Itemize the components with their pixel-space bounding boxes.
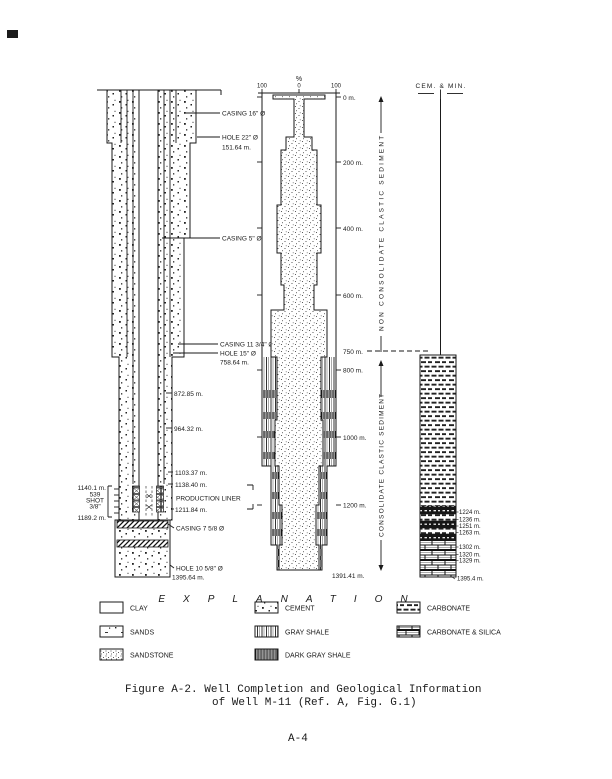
left-annulus-band [107, 90, 139, 520]
cem-depth-1236: 1236 m. [459, 518, 481, 524]
depth-964-label: 964.32 m. [174, 426, 203, 433]
depth-758-label: 758.64 m. [220, 360, 249, 367]
depth-1200m: 1200 m. [343, 503, 367, 510]
depth-151-label: 151.64 m. [222, 145, 251, 152]
depth-1103-label: 1103.37 m. [175, 470, 207, 477]
zone-upper-label: NON CONSOLIDATE CLASTIC SEDIMENT [379, 134, 386, 331]
legend-label-dark-gray-shale: DARK GRAY SHALE [285, 653, 351, 660]
hole-1058-label: HOLE 10 5/8" Ø [176, 566, 223, 573]
mineral-band-1263 [420, 534, 456, 540]
legend-label-clay: CLAY [130, 606, 148, 613]
depth-750m: 750 m. [343, 349, 363, 356]
legend-label-gray-shale: GRAY SHALE [285, 630, 329, 637]
depth-1211-label: 1211.84 m. [175, 507, 207, 514]
zone-annotations: NON CONSOLIDATE CLASTIC SEDIMENT CONSOLI… [379, 96, 386, 571]
legend-swatch-dark-gray-shale [255, 649, 278, 660]
depth-872-label: 872.85 m. [174, 391, 203, 398]
legend-title: EXPLANATION [158, 594, 425, 605]
shot-bracket [108, 486, 112, 517]
cem-depth-1263: 1263 m. [459, 531, 481, 537]
scan-artifact [7, 30, 18, 38]
legend-label-sandstone: SANDSTONE [130, 653, 174, 660]
casing-16-label: CASING 16" Ø [222, 111, 265, 118]
cem-depth-1302: 1302 m. [459, 545, 481, 551]
shot-perforation-ticks [114, 489, 119, 513]
mineral-band-1224 [420, 506, 456, 514]
bottom-hole-section [115, 520, 170, 577]
depth-1391m: 1391.41 m. [332, 573, 365, 580]
cem-min-column: CEM. & MIN. 1224 m. 1236 m. 1251 m. 1263… [415, 83, 484, 583]
depth-800m: 800 m. [343, 368, 363, 375]
caption-line2: of Well M-11 (Ref. A, Fig. G.1) [212, 697, 417, 709]
depth-0m: 0 m. [343, 95, 356, 102]
legend-label-carbonate-silica: CARBONATE & SILICA [427, 630, 501, 637]
scale-100-right: 100 [331, 84, 342, 90]
depth-1138-label: 1138.40 m. [175, 482, 207, 489]
scale-ticks [262, 89, 336, 93]
cement-column: % 100 0 100 [257, 76, 428, 580]
legend-swatch-carbonate-silica [397, 626, 420, 637]
well-schematic: CASING 16" Ø HOLE 22" Ø 151.64 m. CASING… [78, 90, 274, 582]
scale-title: % [296, 76, 302, 83]
figure-caption: Figure A-2. Well Completion and Geologic… [125, 684, 481, 709]
depth-200m: 200 m. [343, 160, 363, 167]
casing-11-label: CASING 11 3/4" Ø [220, 342, 274, 349]
hole-15-label: HOLE 15" Ø [220, 351, 256, 358]
production-liner-right [157, 486, 164, 512]
scanned-page: CASING 16" Ø HOLE 22" Ø 151.64 m. CASING… [0, 0, 612, 779]
figure-a2-diagram: CASING 16" Ø HOLE 22" Ø 151.64 m. CASING… [0, 0, 612, 779]
arrow-down-icon [379, 565, 384, 571]
legend-swatch-clay [100, 602, 123, 613]
cem-depth-1329: 1329 m. [459, 559, 481, 565]
legend-label-sands: SANDS [130, 630, 154, 637]
legend: EXPLANATION CLAY SANDS SANDSTONE CEMENT … [100, 594, 501, 660]
legend-label-carbonate: CARBONATE [427, 606, 470, 613]
depth-1189-label: 1189.2 m. [78, 515, 107, 522]
casing-5-label: CASING 5" Ø [222, 236, 262, 243]
page-number: A-4 [288, 733, 308, 745]
cem-min-header-ticks [418, 90, 463, 100]
legend-swatch-carbonate [397, 602, 420, 613]
depth-1395-label: 1395.64 m. [172, 575, 205, 582]
depth-1000m: 1000 m. [343, 435, 367, 442]
arrow-up-icon [379, 96, 384, 102]
scale-100-left: 100 [257, 84, 268, 90]
mineral-band-1251 [420, 521, 456, 528]
cem-min-header: CEM. & MIN. [415, 83, 466, 90]
cement-plug-upper [117, 521, 168, 528]
cement-profile [271, 95, 327, 570]
casing-758-label: CASING 7 5/8 Ø [176, 526, 224, 533]
carbonate-silica-section [420, 540, 456, 577]
arrow-up-icon [379, 360, 384, 366]
legend-swatch-sands [100, 626, 123, 637]
legend-label-cement: CEMENT [285, 606, 315, 613]
depth-600m: 600 m. [343, 293, 363, 300]
legend-swatch-sandstone [100, 649, 123, 660]
cement-plug-lower [117, 540, 168, 547]
cem-depth-1395: 1395.4 m. [457, 577, 484, 583]
zone-lower-label: CONSOLIDATE CLASTIC SEDIMENT [379, 393, 386, 537]
cem-depth-1251: 1251 m. [459, 524, 481, 530]
caption-line1: Figure A-2. Well Completion and Geologic… [125, 684, 481, 696]
production-liner-label: PRODUCTION LINER [176, 496, 241, 503]
depth-400m: 400 m. [343, 226, 363, 233]
scale-0: 0 [297, 84, 301, 90]
legend-swatch-gray-shale [255, 626, 278, 637]
hole-22-label: HOLE 22" Ø [222, 135, 258, 142]
shot-size-label: 3/8" [89, 504, 101, 511]
production-liner-left [133, 486, 140, 512]
cem-depth-1224: 1224 m. [459, 510, 481, 516]
open-hole-dashes [146, 486, 152, 517]
legend-swatch-cement [255, 602, 278, 613]
